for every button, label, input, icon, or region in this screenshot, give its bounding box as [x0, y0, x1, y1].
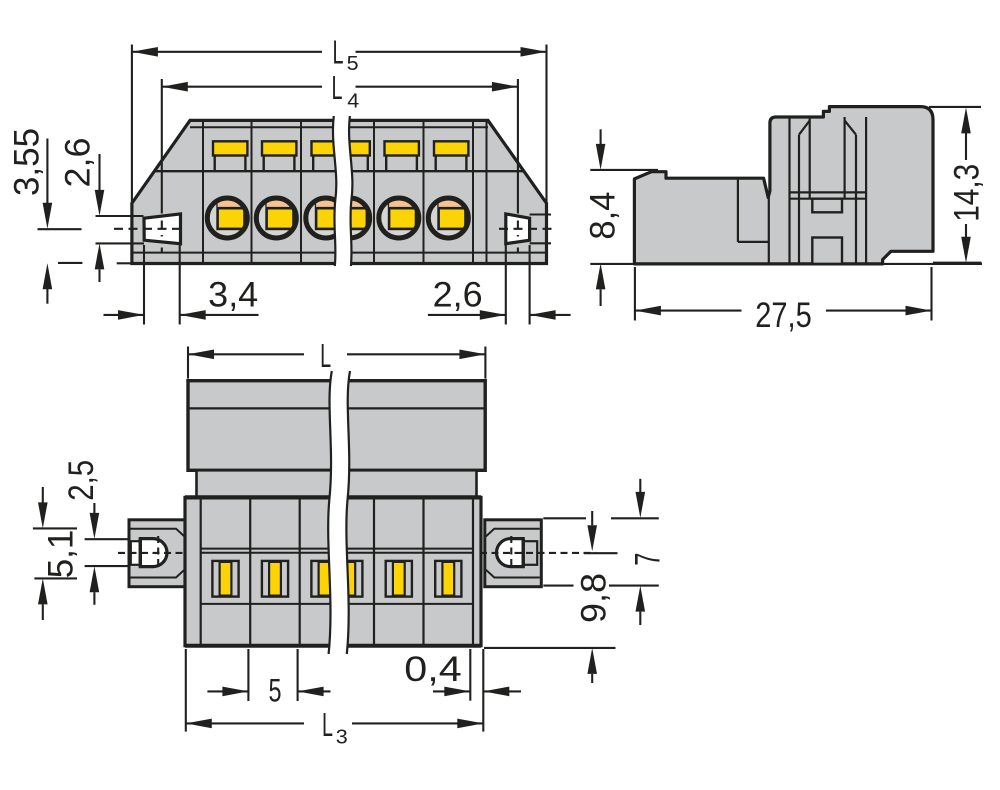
svg-text:3: 3 — [336, 727, 348, 749]
svg-text:7: 7 — [629, 553, 668, 566]
svg-text:5: 5 — [269, 673, 282, 709]
svg-text:5: 5 — [347, 53, 359, 75]
svg-text:14,3: 14,3 — [948, 164, 987, 222]
svg-text:9,8: 9,8 — [575, 573, 614, 623]
svg-text:4: 4 — [347, 90, 359, 112]
svg-text:L: L — [333, 33, 344, 70]
svg-text:2,6: 2,6 — [59, 138, 98, 188]
svg-text:0,4: 0,4 — [404, 650, 461, 689]
svg-text:3,4: 3,4 — [208, 276, 258, 315]
svg-text:5,1: 5,1 — [42, 530, 81, 579]
svg-text:2,5: 2,5 — [62, 460, 101, 501]
svg-text:L: L — [332, 69, 343, 106]
svg-text:3,55: 3,55 — [8, 128, 47, 196]
svg-text:8,4: 8,4 — [584, 192, 623, 240]
svg-text:L: L — [320, 337, 331, 374]
svg-text:L: L — [322, 706, 333, 743]
svg-text:2,6: 2,6 — [433, 276, 483, 315]
svg-text:27,5: 27,5 — [755, 296, 812, 335]
